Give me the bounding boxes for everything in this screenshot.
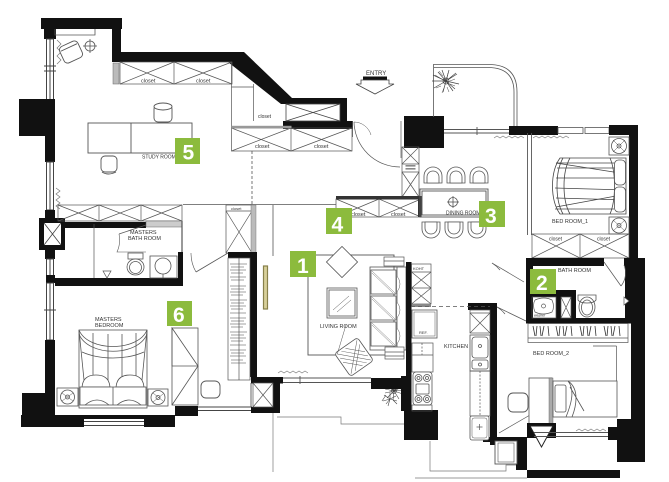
svg-text:5: 5: [183, 142, 195, 165]
svg-text:closet: closet: [391, 212, 406, 218]
svg-text:closet: closet: [314, 144, 329, 150]
svg-text:1: 1: [297, 255, 309, 278]
svg-text:LIVING ROOM: LIVING ROOM: [320, 324, 357, 330]
svg-text:DINING ROOM: DINING ROOM: [446, 211, 480, 217]
svg-text:BATH ROOM: BATH ROOM: [558, 268, 591, 274]
svg-text:closet: closet: [597, 237, 611, 243]
svg-text:closet: closet: [549, 237, 563, 243]
svg-text:closet: closet: [255, 144, 270, 150]
svg-text:KOHT: KOHT: [413, 266, 425, 271]
svg-text:closet: closet: [231, 206, 242, 211]
svg-text:KITCHEN: KITCHEN: [444, 344, 468, 350]
svg-text:closet: closet: [351, 212, 366, 218]
svg-text:BED ROOM_1: BED ROOM_1: [552, 219, 588, 225]
svg-text:3: 3: [485, 205, 497, 228]
svg-text:BATH ROOM: BATH ROOM: [128, 236, 161, 242]
svg-text:closet: closet: [196, 79, 211, 85]
svg-text:4: 4: [332, 214, 344, 237]
svg-text:washer: washer: [534, 314, 546, 318]
svg-text:BEDROOM: BEDROOM: [95, 323, 124, 329]
svg-text:2: 2: [536, 272, 548, 295]
svg-text:ENTRY: ENTRY: [366, 71, 386, 77]
svg-text:closet: closet: [141, 79, 156, 85]
svg-text:REF.: REF.: [419, 330, 428, 335]
svg-text:BED ROOM_2: BED ROOM_2: [533, 351, 569, 357]
svg-text:STUDY ROOM: STUDY ROOM: [142, 155, 176, 161]
svg-text:6: 6: [173, 304, 185, 327]
svg-text:closet: closet: [258, 114, 272, 120]
